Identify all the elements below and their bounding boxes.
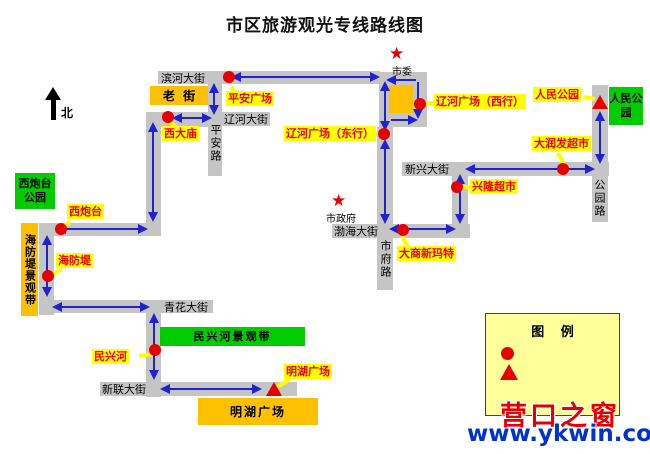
station-label-darunfa: 大润发超市 [532,136,591,151]
station-label-pingan-square: 平安广场 [226,91,274,106]
star-icon-shizhengfu: ★ [331,193,346,210]
station-dot-xidamiao [162,111,174,123]
station-dot-darunfa [557,163,569,175]
station-label-xidamiao: 西大庙 [162,126,199,141]
route-map: 市区旅游观光专线路线图 北 滨河大街 辽河大街 平安路 青花大街 新联大街 新兴… [0,0,650,454]
station-dot-pingan-square [223,71,235,83]
station-label-dashang: 大商新玛特 [397,246,456,261]
station-label-xipaotai: 西炮台 [67,204,104,219]
route-lines [0,0,650,454]
station-dot-minxinghe [149,344,161,356]
legend-station-dot-icon [501,347,514,360]
station-label-liaohe-east: 辽河广场（东行） [284,126,376,141]
star-icon-shiwei: ★ [389,46,404,63]
station-dot-dashang [397,224,409,236]
station-label-renmin-park: 人民公园 [533,87,581,102]
watermark-site: www.ykwin.com [467,421,650,447]
station-label-minxinghe: 民兴河 [92,349,129,364]
station-dot-liaohe-east [378,128,390,140]
station-label-xinglong: 兴隆超市 [470,179,518,194]
legend-terminus-triangle-icon [500,364,518,380]
terminus-triangle-minghu [266,382,282,396]
station-dot-haifangdi [42,270,54,282]
station-label-haifangdi: 海防堤 [56,253,93,268]
station-dot-liaohe-west [414,98,426,110]
terminus-triangle-renmin-park [592,95,608,109]
station-label-minghu: 明湖广场 [284,364,332,379]
landmark-label-shiwei: 市委 [392,63,412,78]
landmark-label-shizhengfu: 市政府 [326,210,356,225]
station-label-liaohe-west: 辽河广场（西行） [434,94,526,109]
station-dot-xinglong [451,181,463,193]
station-dot-xipaotai [55,223,67,235]
